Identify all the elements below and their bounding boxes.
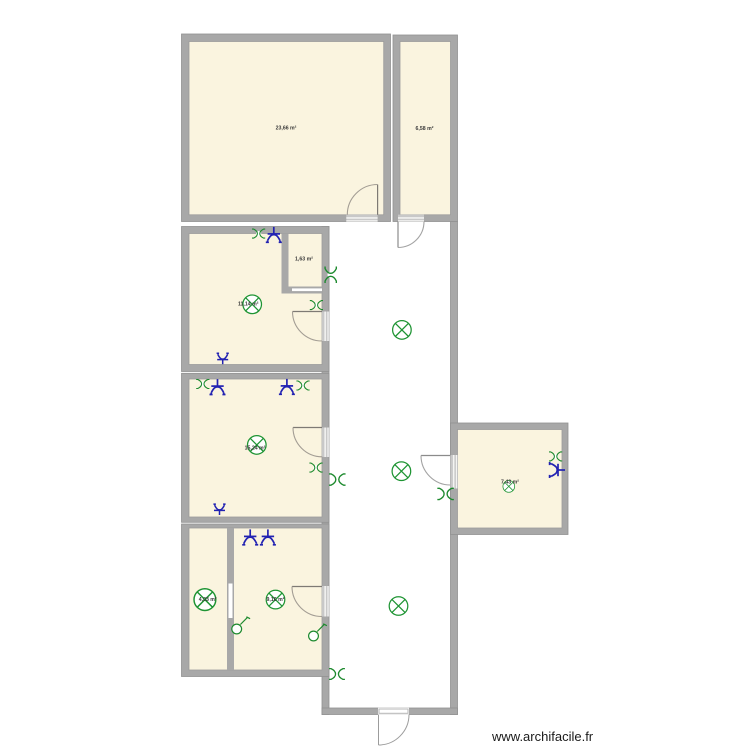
svg-text:www.archifacile.fr: www.archifacile.fr (491, 729, 594, 744)
svg-text:7,43 m²: 7,43 m² (501, 480, 519, 486)
svg-text:6,58 m²: 6,58 m² (416, 126, 434, 132)
svg-text:23,66 m²: 23,66 m² (276, 125, 297, 131)
svg-text:11,14 m²: 11,14 m² (238, 301, 259, 307)
svg-text:1,63 m²: 1,63 m² (295, 257, 313, 263)
svg-text:15,24 m²: 15,24 m² (245, 445, 266, 451)
svg-text:9,16 m²: 9,16 m² (267, 597, 285, 603)
svg-text:4,03 m²: 4,03 m² (199, 597, 217, 603)
